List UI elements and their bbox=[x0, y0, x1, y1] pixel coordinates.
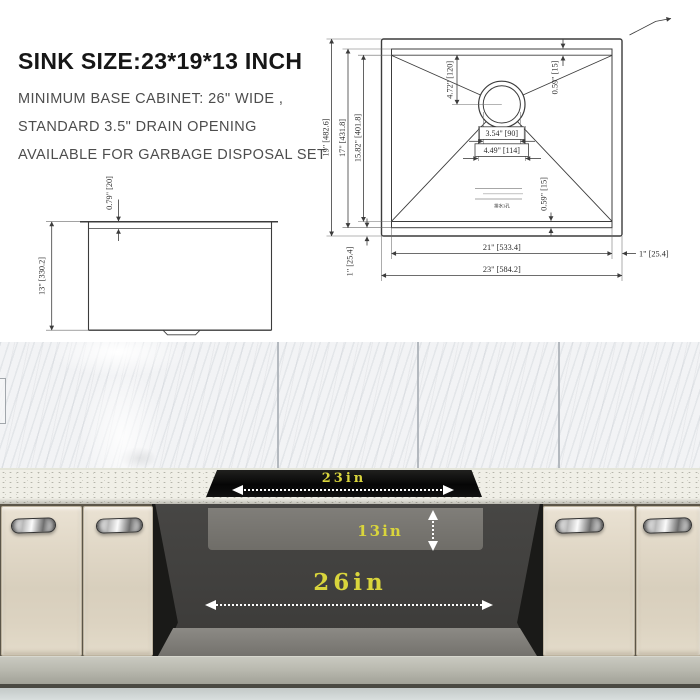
sink-width-label: 23in bbox=[206, 471, 482, 486]
page-title: SINK SIZE:23*19*13 INCH bbox=[18, 48, 338, 75]
arrow-head-left bbox=[232, 485, 243, 495]
extension-lines bbox=[46, 222, 89, 331]
faucet-corner-annotation bbox=[630, 19, 672, 36]
dim-rim-right: 1" [25.4] bbox=[639, 249, 669, 258]
extension-lines bbox=[327, 39, 623, 281]
dim-rim-height: 0.79" [20] bbox=[105, 176, 114, 210]
dim-height-bowl: 15.82" [401.8] bbox=[353, 114, 362, 163]
sink-width-arrow bbox=[232, 485, 454, 495]
installation-photo: 23in 13in 26in bbox=[0, 342, 700, 700]
dim-rim-left: 1" [25.4] bbox=[346, 246, 355, 276]
arrow-line bbox=[240, 489, 446, 491]
dim-height-inner: 17" [431.8] bbox=[338, 119, 347, 157]
dim-height-outer: 19" [482.6] bbox=[321, 118, 330, 156]
marble-backsplash bbox=[0, 342, 700, 468]
dim-depth: 13" [330.2] bbox=[38, 257, 47, 295]
dimension-lines bbox=[52, 200, 119, 331]
spec-line-base-cabinet: MINIMUM BASE CABINET: 26" WIDE , bbox=[18, 91, 338, 107]
dim-corner-radius-top: 0.59" [15] bbox=[551, 60, 560, 94]
cabinet-width-arrow bbox=[205, 600, 493, 610]
dim-width-inner: 21" [533.4] bbox=[483, 243, 521, 252]
sink-rim-front: 23in bbox=[206, 470, 482, 497]
arrow-head-right bbox=[482, 600, 493, 610]
tile-seam bbox=[417, 342, 419, 468]
arrow-head-up bbox=[428, 510, 438, 520]
dimension-labels: 19" [482.6] 17" [431.8] 15.82" [401.8] 4… bbox=[321, 60, 669, 276]
sink-depth-arrow bbox=[428, 510, 438, 551]
product-spec-image: SINK SIZE:23*19*13 INCH MINIMUM BASE CAB… bbox=[0, 0, 700, 700]
tile-seam bbox=[277, 342, 279, 468]
sink-outline-top-view bbox=[382, 19, 672, 237]
drain-note: 排水3孔 bbox=[494, 203, 510, 210]
arrow-line bbox=[432, 518, 434, 543]
arrow-head-down bbox=[428, 541, 438, 551]
dim-width-outer: 23" [584.2] bbox=[483, 265, 521, 274]
cabinet-floor bbox=[158, 628, 537, 656]
floor bbox=[0, 688, 700, 700]
dimension-labels: 0.79" [20] 13" [330.2] bbox=[38, 176, 115, 295]
cabinet-width-label: 26in bbox=[270, 569, 430, 596]
dim-drain-offset: 4.72" [120] bbox=[446, 61, 455, 99]
spec-line-disposal: AVAILABLE FOR GARBAGE DISPOSAL SET bbox=[18, 147, 338, 163]
drain-bump bbox=[163, 330, 200, 335]
dim-corner-radius-bottom: 0.59" [15] bbox=[540, 177, 549, 211]
door-handle-4 bbox=[643, 517, 692, 534]
spec-text-block: SINK SIZE:23*19*13 INCH MINIMUM BASE CAB… bbox=[18, 48, 338, 175]
door-handle-2 bbox=[96, 517, 143, 534]
dimension-lines bbox=[332, 39, 636, 276]
door-handle-1 bbox=[11, 517, 56, 534]
spec-line-drain: STANDARD 3.5" DRAIN OPENING bbox=[18, 119, 338, 135]
arrow-head-left bbox=[205, 600, 216, 610]
arrow-line bbox=[213, 604, 485, 606]
tile-seam bbox=[558, 342, 560, 468]
sink-depth-label: 13in bbox=[330, 522, 430, 540]
sink-outline-side-view bbox=[80, 222, 278, 335]
dim-drain-inner: 3.54" [90] bbox=[486, 129, 519, 138]
arrow-head-right bbox=[443, 485, 454, 495]
floor-plinth bbox=[0, 656, 700, 685]
left-edge-artifact bbox=[0, 378, 6, 424]
top-view-drawing: 19" [482.6] 17" [431.8] 15.82" [401.8] 4… bbox=[318, 5, 700, 297]
dim-drain-outer: 4.49" [114] bbox=[484, 146, 521, 155]
side-view-drawing: 0.79" [20] 13" [330.2] bbox=[20, 175, 300, 345]
door-handle-3 bbox=[555, 517, 604, 534]
